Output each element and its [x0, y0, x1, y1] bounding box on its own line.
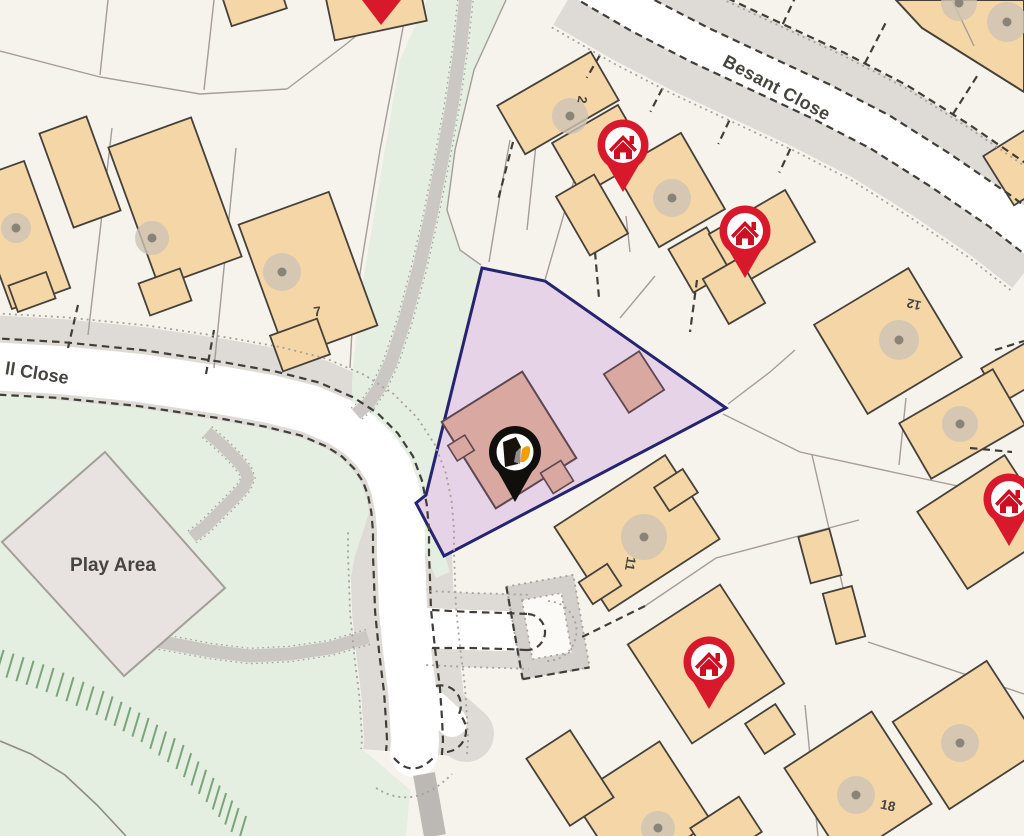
- svg-text:11: 11: [622, 556, 639, 572]
- svg-text:Play Area: Play Area: [70, 555, 156, 576]
